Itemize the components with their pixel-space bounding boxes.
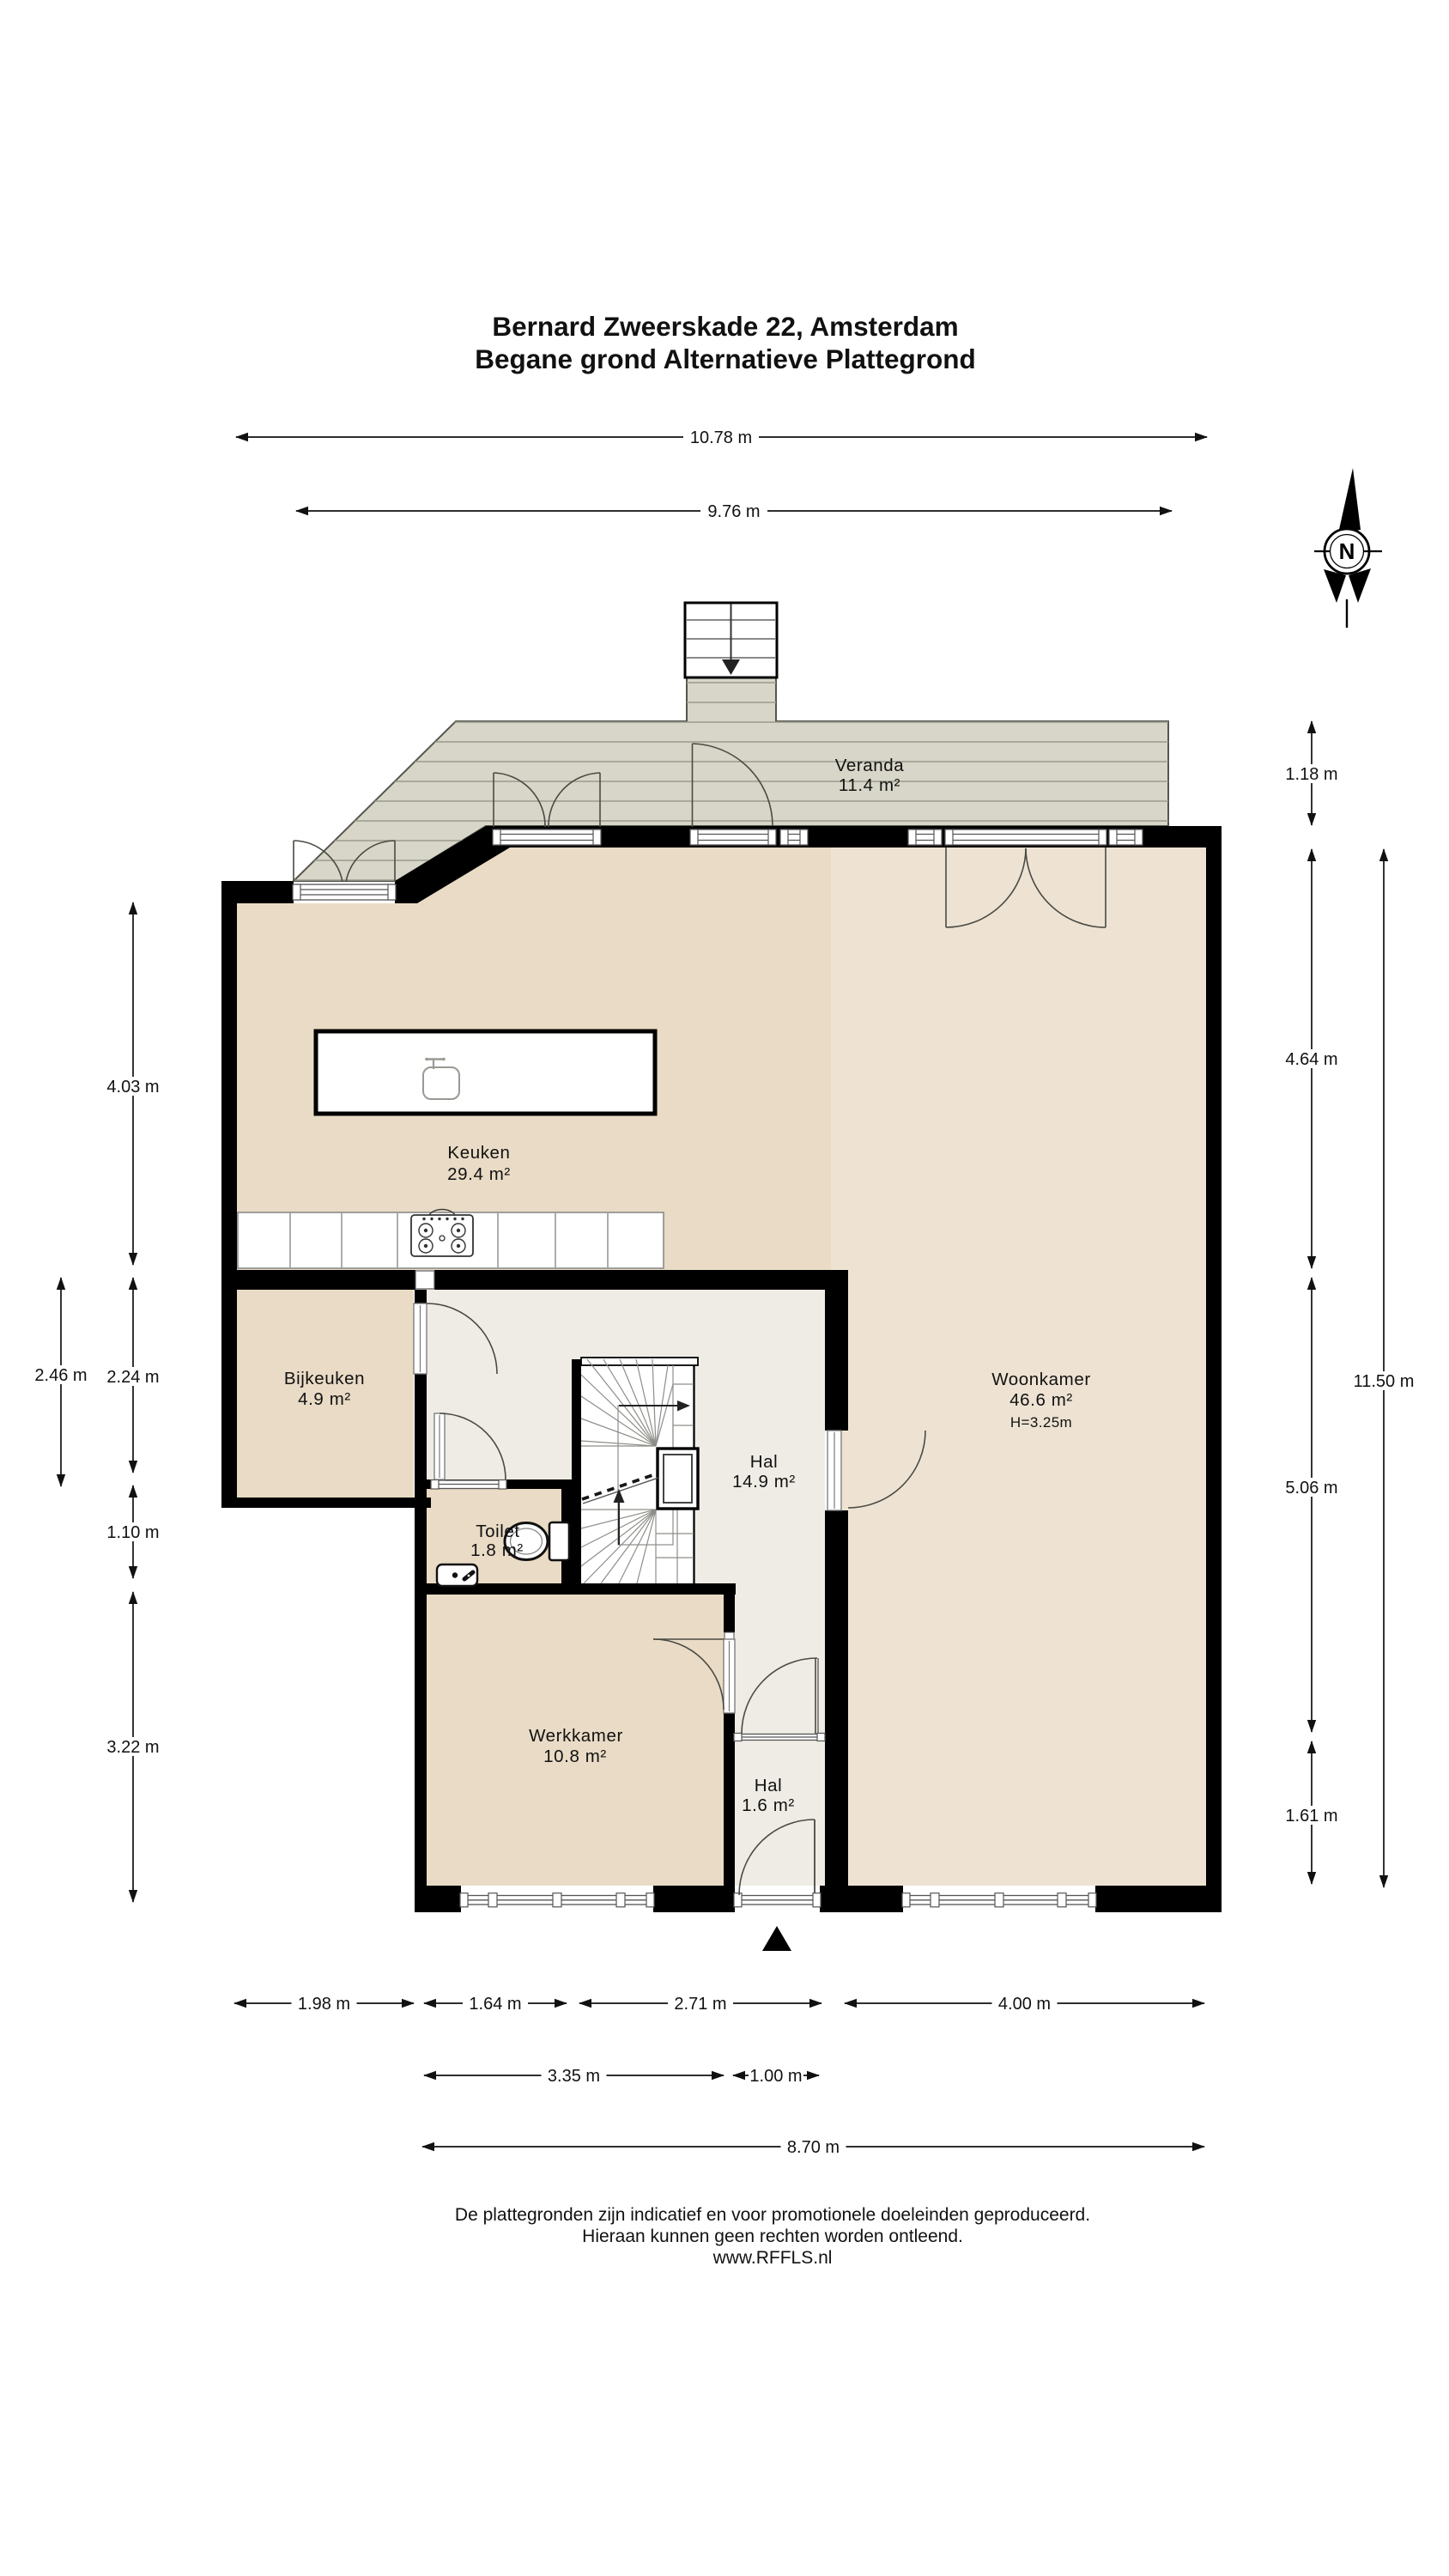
svg-text:14.9 m²: 14.9 m²: [732, 1472, 796, 1492]
svg-text:Begane grond Alternatieve Plat: Begane grond Alternatieve Plattegrond: [475, 343, 975, 374]
svg-text:3.35 m: 3.35 m: [548, 2067, 600, 2086]
svg-text:4.64 m: 4.64 m: [1285, 1050, 1337, 1069]
svg-text:4.9 m²: 4.9 m²: [298, 1389, 351, 1409]
svg-text:www.RFFLS.nl: www.RFFLS.nl: [712, 2248, 833, 2268]
svg-text:1.8 m²: 1.8 m²: [470, 1540, 524, 1560]
svg-text:2.71 m: 2.71 m: [674, 1995, 726, 2014]
svg-text:8.70 m: 8.70 m: [787, 2138, 840, 2157]
svg-text:Keuken: Keuken: [447, 1143, 510, 1163]
svg-text:Hal: Hal: [750, 1452, 779, 1472]
svg-text:N: N: [1339, 538, 1355, 564]
svg-text:4.00 m: 4.00 m: [998, 1995, 1051, 2014]
svg-text:Hal: Hal: [755, 1776, 783, 1795]
svg-text:1.18 m: 1.18 m: [1285, 765, 1337, 784]
svg-text:1.10 m: 1.10 m: [106, 1523, 159, 1542]
svg-text:4.03 m: 4.03 m: [106, 1078, 159, 1097]
svg-text:11.50 m: 11.50 m: [1354, 1372, 1415, 1391]
svg-text:3.22 m: 3.22 m: [106, 1738, 159, 1757]
svg-text:1.98 m: 1.98 m: [298, 1995, 350, 2014]
svg-text:Hieraan kunnen geen rechten wo: Hieraan kunnen geen rechten worden ontle…: [582, 2227, 963, 2246]
svg-text:11.4 m²: 11.4 m²: [839, 775, 900, 795]
svg-text:5.06 m: 5.06 m: [1285, 1479, 1337, 1498]
svg-text:De plattegronden zijn indicati: De plattegronden zijn indicatief en voor…: [455, 2205, 1090, 2225]
svg-text:1.00 m: 1.00 m: [749, 2067, 802, 2086]
svg-text:2.46 m: 2.46 m: [34, 1366, 87, 1385]
svg-text:H=3.25m: H=3.25m: [1010, 1414, 1072, 1431]
svg-text:29.4 m²: 29.4 m²: [447, 1164, 511, 1184]
svg-text:Werkkamer: Werkkamer: [529, 1726, 623, 1746]
svg-text:10.78 m: 10.78 m: [690, 428, 752, 447]
svg-text:Veranda: Veranda: [835, 756, 905, 775]
svg-text:Bijkeuken: Bijkeuken: [284, 1369, 365, 1388]
svg-text:Toilet: Toilet: [476, 1522, 519, 1541]
svg-text:9.76 m: 9.76 m: [707, 502, 760, 521]
svg-text:10.8 m²: 10.8 m²: [543, 1747, 607, 1766]
svg-text:1.64 m: 1.64 m: [469, 1995, 521, 2014]
svg-text:1.6 m²: 1.6 m²: [742, 1795, 795, 1815]
svg-text:46.6 m²: 46.6 m²: [1009, 1390, 1073, 1410]
svg-text:Bernard Zweerskade 22, Amsterd: Bernard Zweerskade 22, Amsterdam: [492, 311, 958, 342]
svg-text:2.24 m: 2.24 m: [106, 1368, 159, 1387]
svg-text:Woonkamer: Woonkamer: [991, 1370, 1091, 1389]
svg-text:1.61 m: 1.61 m: [1285, 1807, 1337, 1826]
